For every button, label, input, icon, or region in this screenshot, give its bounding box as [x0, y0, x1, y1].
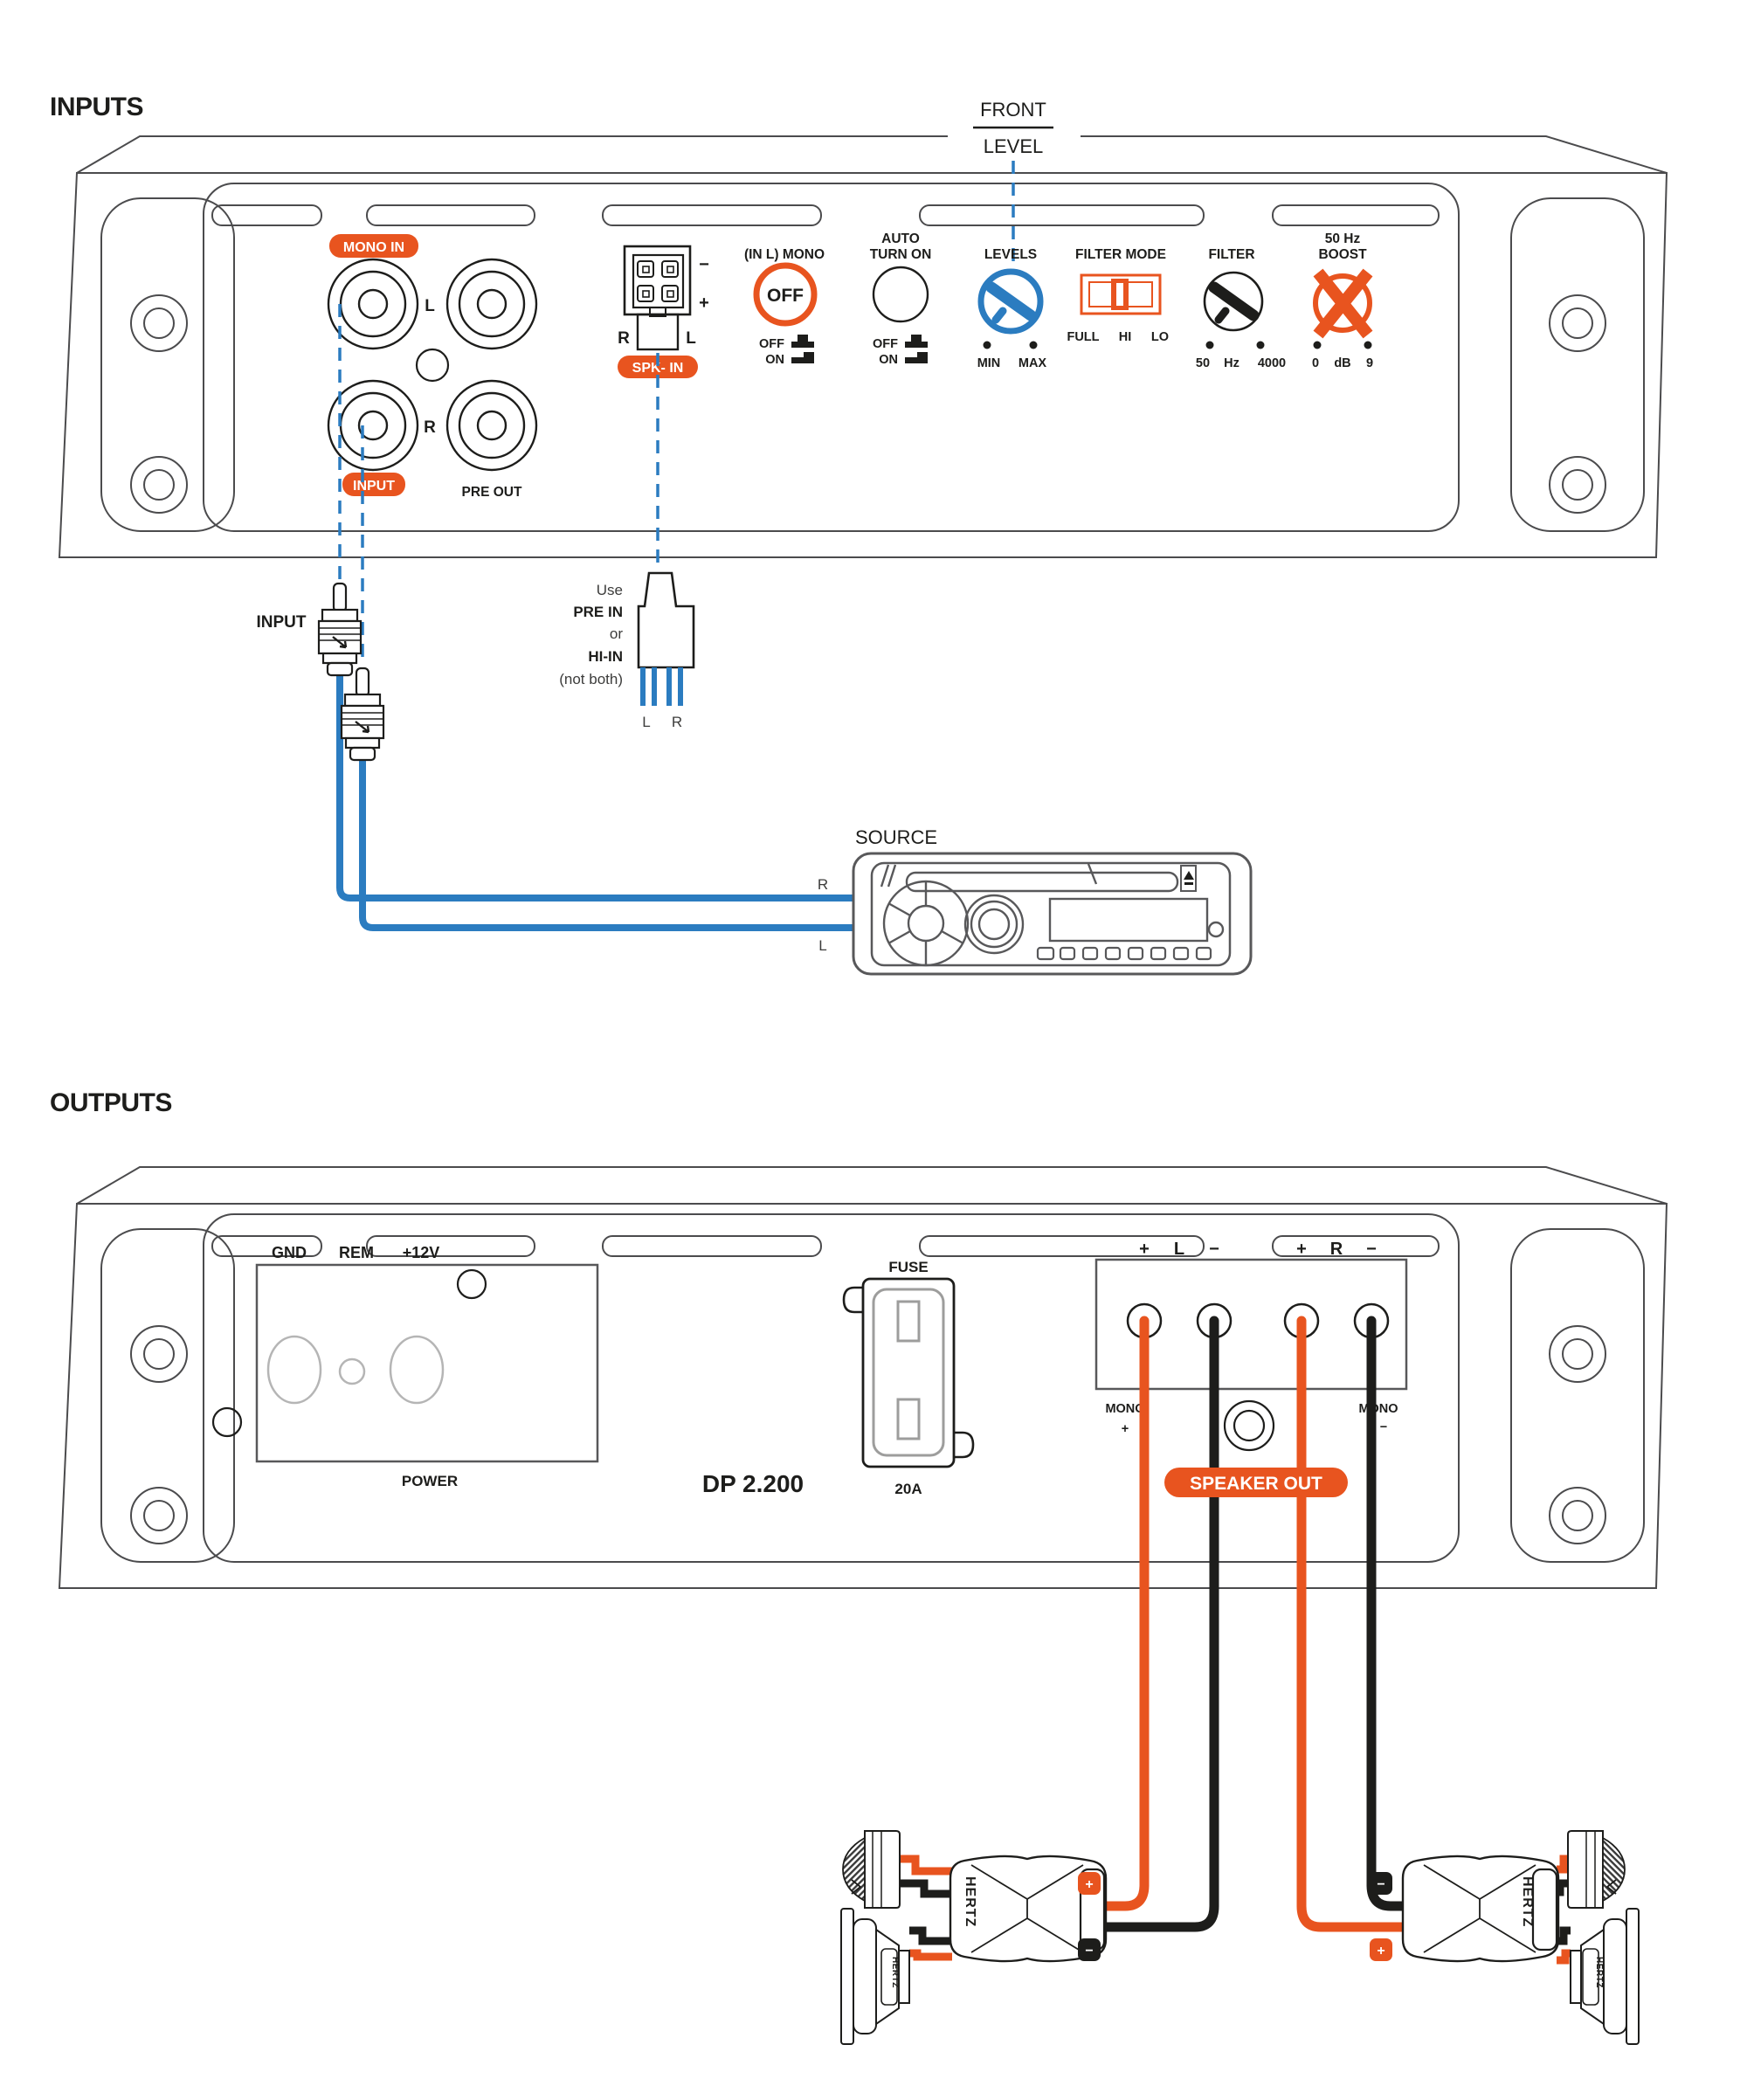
spk-l-label: L [686, 329, 696, 348]
dip-switch-icon [791, 335, 814, 363]
left-speaker-set: HERTZ HERTZ + − [841, 1831, 1106, 2044]
right-speaker-set: HERTZ HERTZ − + [1370, 1831, 1639, 2044]
model-label: DP 2.200 [702, 1470, 804, 1497]
min-dot [984, 342, 991, 349]
boost-label-2: BOOST [1318, 247, 1367, 262]
r-label: R [1330, 1240, 1343, 1259]
mono-left-label: MONO [1105, 1402, 1144, 1416]
filter-max-label: 4000 [1258, 356, 1286, 370]
hi-label: HI [1119, 330, 1132, 344]
spk-r-label: R [618, 329, 630, 348]
pre-out-label: PRE OUT [462, 485, 522, 500]
source-label: SOURCE [855, 826, 937, 848]
l-minus-label: − [1209, 1240, 1219, 1259]
right-plus-badge-label: + [1377, 1944, 1384, 1958]
levels-control: LEVELS MIN MAX [977, 247, 1047, 370]
right-woofer [1571, 1909, 1639, 2044]
max-label: MAX [1019, 356, 1047, 370]
gnd-hole [268, 1337, 321, 1403]
hi-in-plug: L R [639, 573, 694, 730]
plus12v-hole [390, 1337, 443, 1403]
boost-min-dot [1314, 342, 1322, 349]
min-label: MIN [977, 356, 1001, 370]
panel-screw-icon [458, 1270, 486, 1298]
r-minus-label: − [1366, 1240, 1377, 1259]
panel-screw-icon [1234, 1411, 1264, 1440]
mono-in-badge-label: MONO IN [343, 240, 404, 255]
speaker-out-label: SPEAKER OUT [1190, 1474, 1322, 1494]
in-l-mono-label: (IN L) MONO [744, 247, 825, 262]
rca-l-label: L [425, 297, 435, 315]
boost-unit-label: dB [1334, 356, 1350, 370]
auto-turn-on-control: AUTO TURN ON OFF ON [870, 231, 932, 367]
rca-r-label: R [424, 418, 436, 437]
source-l-label: L [818, 937, 826, 954]
panel-screw-icon [1225, 1401, 1274, 1450]
power-terminal-block: GND REM +12V POWER [257, 1244, 597, 1489]
right-minus-badge-label: − [1377, 1877, 1384, 1892]
inputs-amplifier: FRONT LEVEL MONO IN L R INPUT PRE OUT [59, 84, 1667, 557]
left-woofer-brand: HERTZ [890, 1957, 900, 1988]
filter-pointer [1214, 287, 1253, 315]
filter-label: FILTER [1208, 247, 1254, 262]
rca-wire-r [340, 674, 853, 898]
l-label: L [1174, 1240, 1184, 1259]
levels-pointer [991, 287, 1031, 315]
filter-control: FILTER 50 Hz 4000 [1196, 247, 1286, 370]
right-crossover-brand: HERTZ [1520, 1876, 1535, 1927]
rca-jack-input-l [328, 259, 418, 349]
panel-screw-icon [417, 349, 448, 381]
note-pre-in: PRE IN [573, 604, 623, 620]
lo-label: LO [1151, 330, 1169, 344]
fuse-label: FUSE [888, 1259, 928, 1275]
levels-pointer-stub [996, 311, 1003, 320]
rca-jack-preout-l [447, 259, 536, 349]
left-speaker-wires [900, 1859, 952, 1957]
outputs-amplifier: GND REM +12V POWER DP 2.200 FUSE 20A + L [59, 1167, 1667, 1588]
auto-label-1: AUTO [881, 231, 920, 246]
l-plus-label: + [1139, 1240, 1150, 1259]
rem-label: REM [339, 1244, 374, 1261]
fuse-rating-label: 20A [894, 1481, 922, 1497]
filter-mode-slider-slit [1116, 283, 1123, 306]
note-or: or [610, 625, 623, 642]
mono-minus-label: − [1380, 1420, 1387, 1434]
right-woofer-brand: HERTZ [1594, 1957, 1604, 1988]
rca-wire-l [363, 759, 853, 928]
filter-unit-label: Hz [1224, 356, 1239, 370]
left-minus-badge-label: − [1085, 1944, 1093, 1958]
rem-hole [340, 1359, 364, 1384]
boost-max-label: 9 [1366, 356, 1373, 370]
plus12v-label: +12V [403, 1244, 440, 1261]
spk-minus-label: − [699, 255, 709, 274]
rca-plug-2 [342, 668, 383, 760]
auto-label-2: TURN ON [870, 247, 932, 262]
input-plugs-label: INPUT [257, 613, 307, 632]
source-head-unit: SOURCE R L [818, 826, 1251, 974]
filter-mode-label: FILTER MODE [1075, 247, 1166, 262]
in-l-mono-sw-off: OFF [759, 337, 784, 351]
level-label: LEVEL [984, 135, 1044, 157]
filter-max-dot [1257, 342, 1265, 349]
in-l-mono-off: OFF [767, 286, 804, 306]
hi-in-wire-r: R [672, 714, 682, 730]
max-dot [1030, 342, 1038, 349]
boost-label-1: 50 Hz [1325, 231, 1361, 246]
levels-label: LEVELS [984, 247, 1037, 262]
rca-input-group: MONO IN L R INPUT PRE OUT [328, 234, 536, 500]
source-r-label: R [818, 876, 828, 893]
panel-screw-icon [213, 1408, 241, 1436]
outputs-title: OUTPUTS [50, 1088, 172, 1117]
boost-max-dot [1364, 342, 1372, 349]
mono-plus-label: + [1122, 1422, 1129, 1436]
rca-jack-input-r [328, 381, 418, 470]
right-tweeter [1568, 1831, 1625, 1908]
mono-right-label: MONO [1358, 1402, 1398, 1416]
left-plus-badge-label: + [1085, 1877, 1093, 1892]
note-not-both: (not both) [559, 671, 623, 687]
note-use: Use [597, 582, 623, 598]
fuse-holder: FUSE 20A [844, 1259, 973, 1497]
r-plus-label: + [1296, 1240, 1307, 1259]
boost-control: 50 Hz BOOST 0 dB 9 [1312, 231, 1373, 370]
boost-min-label: 0 [1312, 356, 1319, 370]
power-label: POWER [402, 1473, 458, 1489]
dip-switch-icon [905, 335, 928, 363]
gnd-label: GND [272, 1244, 307, 1261]
rca-jack-preout-r [447, 381, 536, 470]
inputs-title: INPUTS [50, 93, 143, 121]
wiring-diagram-page: INPUTS FRONT LEVEL MONO IN L R INPUT PRE… [0, 0, 1747, 2100]
auto-turn-on-knob [873, 267, 928, 321]
auto-sw-off: OFF [873, 337, 898, 351]
spk-plus-label: + [699, 294, 709, 313]
full-label: FULL [1067, 330, 1099, 344]
in-l-mono-control: (IN L) MONO OFF OFF ON [744, 247, 825, 367]
hi-in-wire-l: L [642, 714, 650, 730]
in-l-mono-sw-on: ON [765, 353, 784, 367]
diagram-svg: INPUTS FRONT LEVEL MONO IN L R INPUT PRE… [0, 0, 1747, 2100]
auto-sw-on: ON [879, 353, 898, 367]
left-crossover-brand: HERTZ [963, 1876, 977, 1927]
front-label: FRONT [980, 99, 1046, 121]
input-badge-label: INPUT [353, 479, 395, 494]
filter-min-label: 50 [1196, 356, 1210, 370]
pre-in-hi-in-note: Use PRE IN or HI-IN (not both) [559, 582, 623, 687]
left-tweeter [843, 1831, 900, 1908]
filter-mode-control: FILTER MODE FULL HI LO [1067, 247, 1169, 344]
spk-in-connector [625, 246, 690, 349]
filter-min-dot [1206, 342, 1214, 349]
filter-pointer-stub [1219, 311, 1226, 320]
rca-plug-1 [319, 584, 361, 675]
note-hi-in: HI-IN [588, 648, 623, 665]
